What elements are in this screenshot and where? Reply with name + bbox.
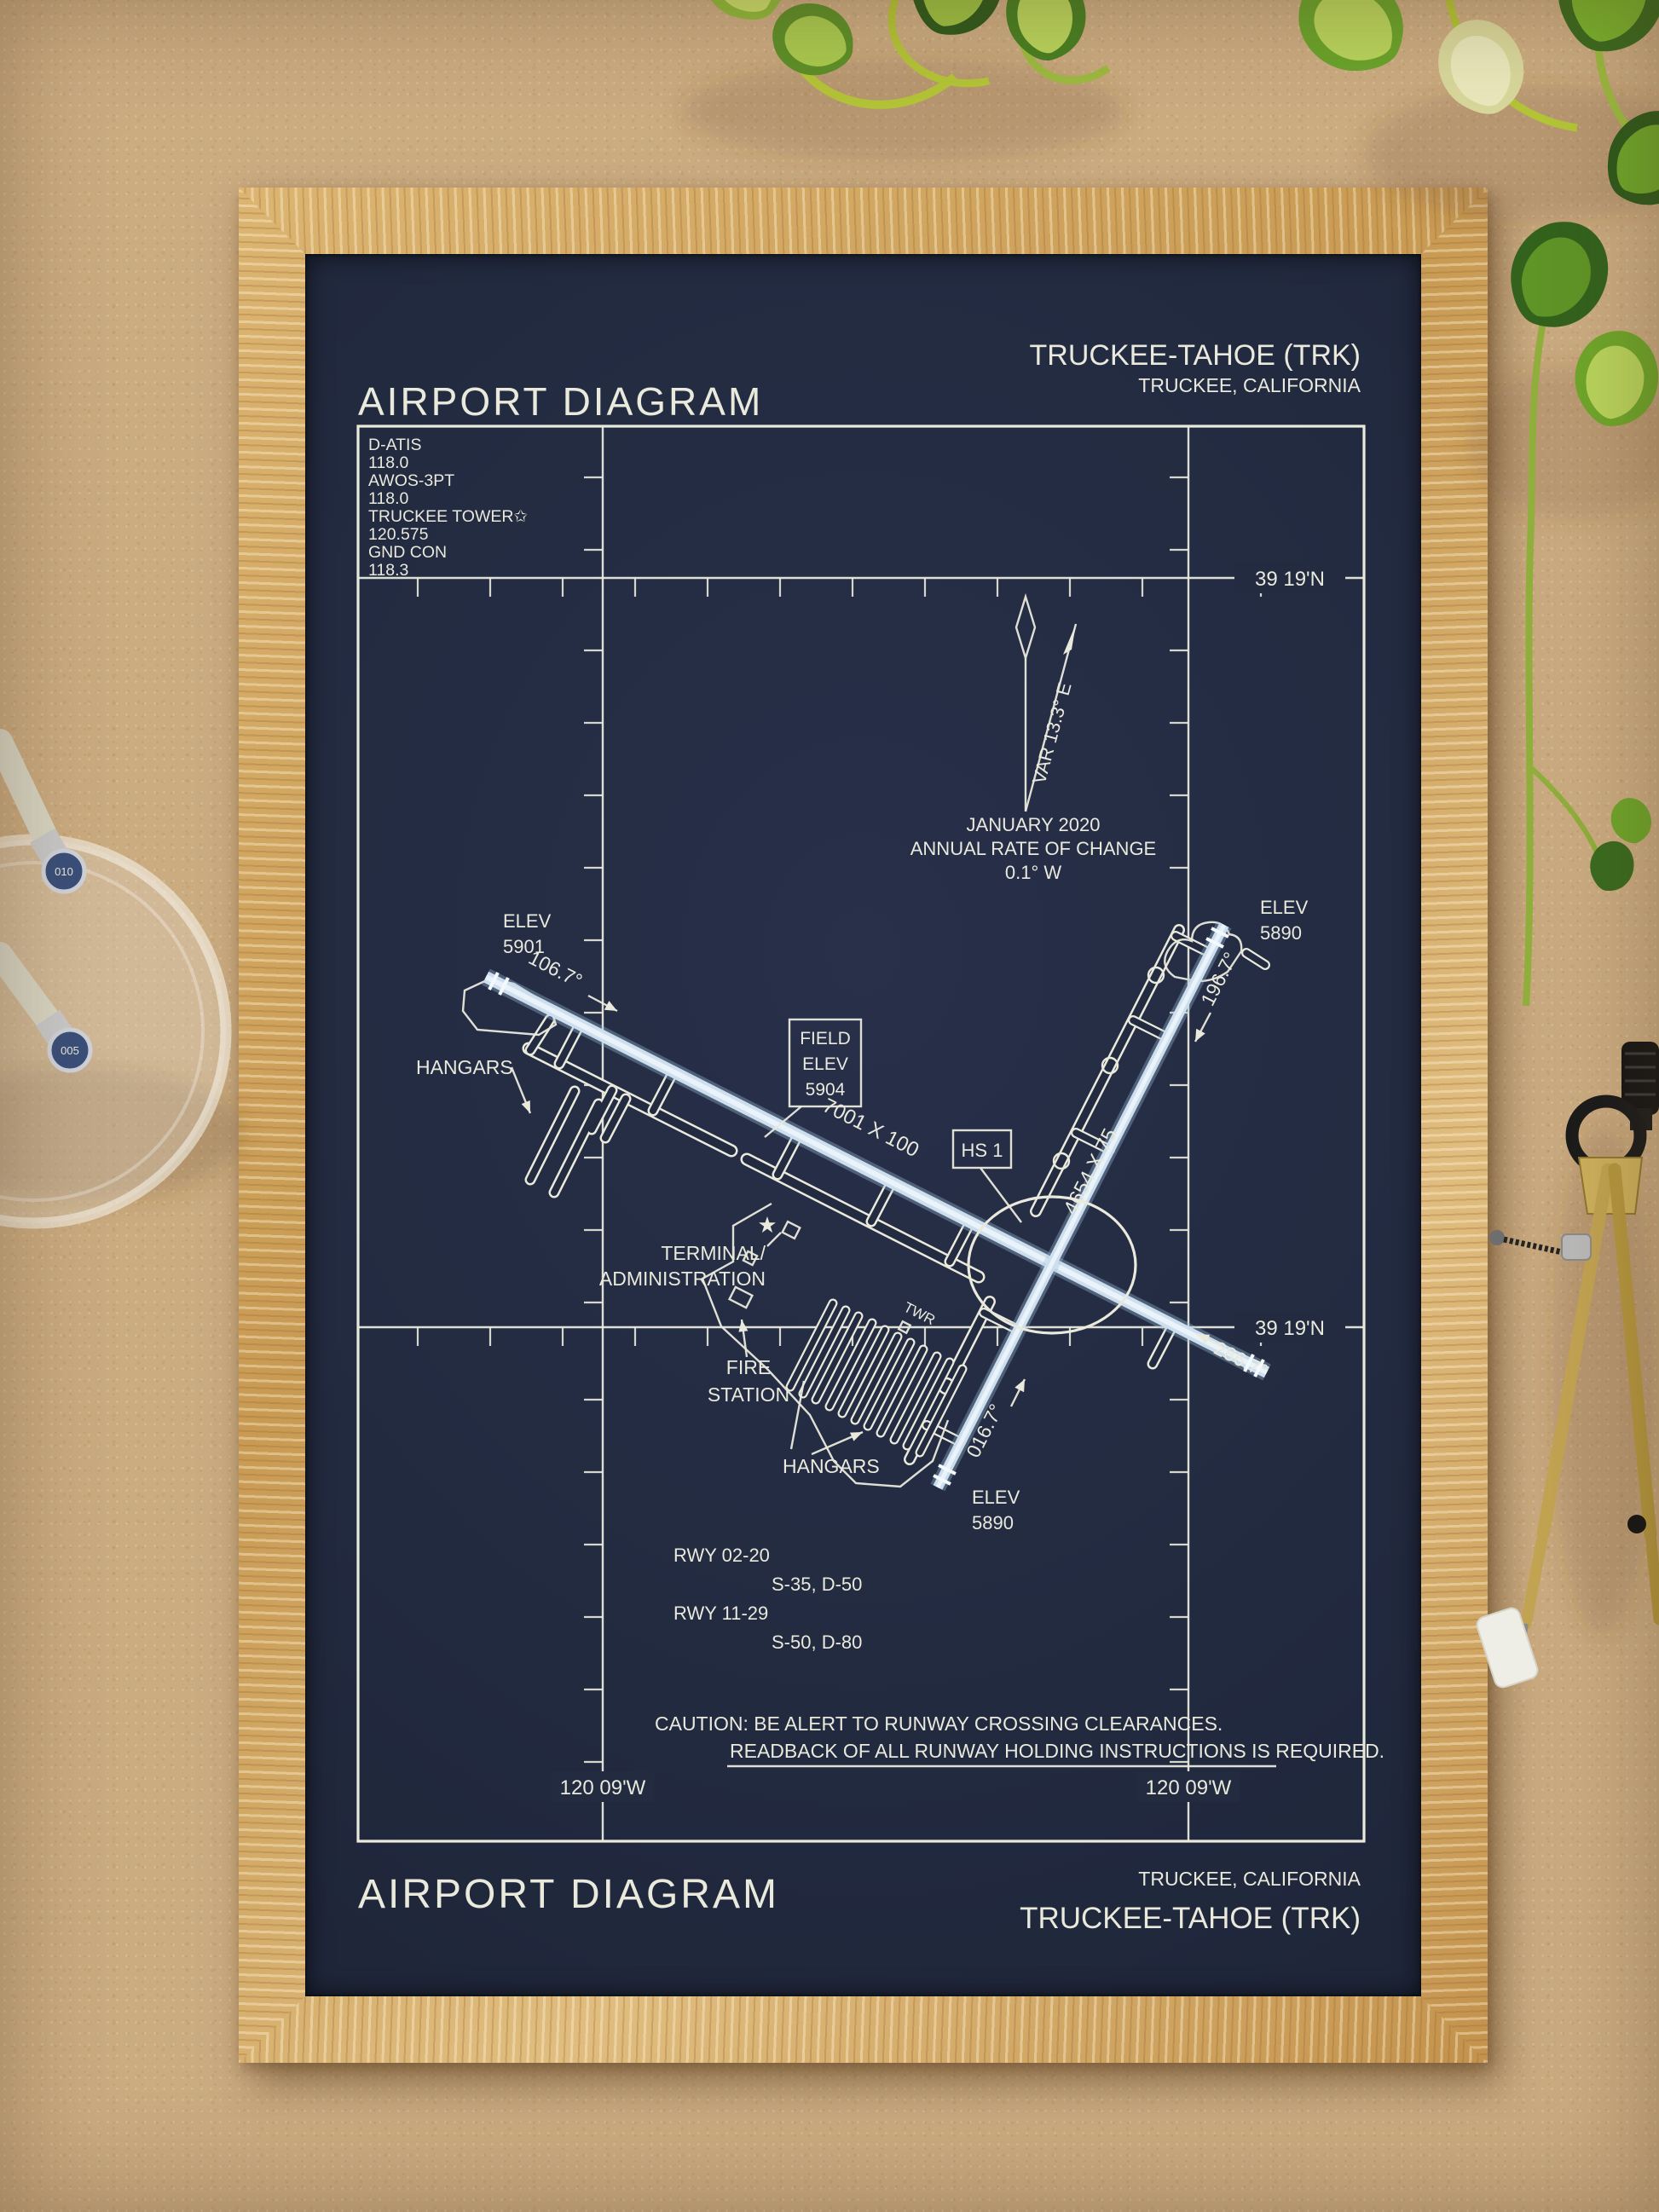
lon-left-label: 120 09'W (560, 1776, 646, 1799)
leaf-icon (893, 0, 1020, 51)
leaf-icon (1006, 0, 1085, 61)
rwy-data-line: S-35, D-50 (772, 1574, 862, 1595)
comm-line: 120.575 (368, 525, 429, 544)
lon-right-label: 120 09'W (1146, 1776, 1232, 1799)
airport-name: TRUCKEE-TAHOE (TRK) (1030, 339, 1361, 372)
black-pen-clip (7, 750, 29, 797)
annual-rate-label: ANNUAL RATE OF CHANGE (910, 838, 1156, 859)
caution-note: CAUTION: BE ALERT TO RUNWAY CROSSING CLE… (655, 1712, 1384, 1766)
terminal-label-2: ADMINISTRATION (599, 1268, 766, 1290)
pen-cap-005-label: 005 (61, 1044, 79, 1057)
leaf-icon (1608, 794, 1655, 846)
leaf-icon (1279, 0, 1425, 95)
vine-stem (1526, 256, 1560, 1006)
lon-right-ticks (1170, 477, 1188, 1762)
frame-edge-right (1421, 188, 1488, 2063)
north-arrow: VAR 13.3° E (1016, 597, 1076, 811)
frame-edge-bottom (239, 1996, 1488, 2063)
comm-line: 118.0 (368, 489, 409, 508)
rwy-data-line: RWY 11-29 (673, 1603, 768, 1624)
hangars-nw-label: HANGARS (416, 1056, 513, 1078)
elev-ne-word: ELEV (1260, 897, 1309, 918)
fire-label-1: FIRE (726, 1356, 771, 1378)
terminal-label-1: TERMINAL/ (661, 1242, 766, 1264)
compass-leg-left (1543, 1170, 1608, 1534)
variation-label: VAR 13.3° E (1028, 680, 1076, 786)
compass-ring (1572, 1101, 1640, 1170)
page-title: AIRPORT DIAGRAM (358, 379, 763, 424)
airport-diagram-chart: AIRPORT DIAGRAM TRUCKEE-TAHOE (TRK) TRUC… (305, 254, 1421, 1996)
hotspot-callout: HS 1 (953, 1130, 1021, 1222)
pen-cap-010-label: 010 (55, 865, 73, 878)
picture-frame: AIRPORT DIAGRAM TRUCKEE-TAHOE (TRK) TRUC… (239, 188, 1488, 2063)
leaf-icon (1564, 321, 1659, 436)
caution-line1: CAUTION: BE ALERT TO RUNWAY CROSSING CLE… (655, 1712, 1223, 1735)
elev-ne-value: 5890 (1260, 922, 1302, 944)
fire-station-building (730, 1287, 753, 1308)
compass-hinge (1579, 1158, 1642, 1214)
rwy-data-line: RWY 02-20 (673, 1545, 770, 1566)
terminal-building (783, 1222, 801, 1239)
true-north-arrowhead-icon (1016, 597, 1035, 658)
comm-line: D-ATIS (368, 436, 421, 454)
field-elev-line1: FIELD (800, 1029, 851, 1048)
pen-cap-010 (43, 851, 84, 892)
footer-city: TRUCKEE, CALIFORNIA (1138, 1868, 1361, 1890)
magnetic-north-barb-icon (1063, 624, 1076, 655)
compass-knob (1621, 1042, 1659, 1115)
divider-compass (1475, 1042, 1659, 1689)
photo-scene: AIRPORT DIAGRAM TRUCKEE-TAHOE (TRK) TRUC… (0, 0, 1659, 2212)
elev-nw-value: 5901 (503, 936, 545, 957)
compass-nut (1562, 1234, 1591, 1260)
field-elev-line3: 5904 (806, 1080, 846, 1100)
compass-screw (1504, 1239, 1574, 1255)
leaf-icon (760, 0, 865, 90)
leaf-icon (1428, 10, 1534, 124)
comm-frequencies: D-ATIS 118.0 AWOS-3PT 118.0 TRUCKEE TOWE… (368, 436, 528, 580)
hotspot-leader (980, 1168, 1021, 1222)
caution-line2: READBACK OF ALL RUNWAY HOLDING INSTRUCTI… (730, 1740, 1384, 1762)
black-pen (0, 743, 34, 814)
hotspot-label: HS 1 (962, 1140, 1003, 1161)
compass-leg-right (1615, 1170, 1650, 1534)
elev-s-word: ELEV (972, 1487, 1020, 1508)
lat-top-ticks (418, 578, 1261, 597)
leaf-icon (1488, 203, 1629, 348)
comm-line: TRUCKEE TOWER✩ (368, 507, 528, 526)
glass-with-pens: 010 005 (0, 742, 226, 1223)
plant-top-center (685, 0, 1108, 105)
pen-cap-005 (49, 1030, 90, 1071)
frame-edge-top (239, 188, 1488, 254)
comm-line: GND CON (368, 543, 447, 562)
glass-rim (0, 840, 226, 1223)
lat-top-label: 39 19'N (1255, 568, 1325, 591)
hangars-s-arrowhead-icon (850, 1432, 863, 1441)
beacon-star-icon (759, 1216, 776, 1233)
hangars-nw-arrowhead-icon (522, 1100, 530, 1113)
comm-line: AWOS-3PT (368, 471, 454, 490)
leaf-icon (1586, 93, 1659, 225)
leaf-icon (1582, 835, 1640, 898)
fire-label-2: STATION (708, 1383, 789, 1406)
rwy-data-line: S-50, D-80 (772, 1632, 862, 1653)
fire-arrowhead-icon (738, 1320, 748, 1332)
comm-line: 118.0 (368, 453, 409, 472)
airport-diagram-poster: AIRPORT DIAGRAM TRUCKEE-TAHOE (TRK) TRUC… (305, 254, 1421, 1996)
fineliner-pen-005: 005 (0, 955, 90, 1071)
footer-airport: TRUCKEE-TAHOE (TRK) (1020, 1902, 1361, 1935)
glass-inner-rim (0, 863, 203, 1200)
lat-bottom-label: 39 19'N (1255, 1317, 1325, 1340)
comm-line: 118.3 (368, 561, 408, 580)
leaf-icon (685, 0, 801, 37)
frame-edge-left (239, 188, 305, 2063)
heading-29-label: 286.7° (1211, 1337, 1271, 1382)
elev-s-value: 5890 (972, 1512, 1014, 1533)
footer-title: AIRPORT DIAGRAM (358, 1872, 779, 1917)
leaf-icon (1540, 0, 1659, 67)
compass-needle-tip (1519, 1624, 1526, 1664)
annual-rate-value: 0.1° W (1005, 862, 1061, 883)
hangars-s-label: HANGARS (783, 1455, 880, 1477)
airport-city: TRUCKEE, CALIFORNIA (1138, 374, 1361, 396)
field-elev-line2: ELEV (802, 1054, 848, 1074)
runway-data-block: RWY 02-20 S-35, D-50 RWY 11-29 S-50, D-8… (673, 1545, 862, 1653)
graticule-labels: 39 19'N 39 19'N 120 09'W 120 09'W (552, 563, 1345, 1802)
terminal-leader (767, 1233, 781, 1246)
variation-date: JANUARY 2020 (967, 814, 1101, 835)
elev-nw-word: ELEV (503, 910, 552, 932)
fineliner-pen-010: 010 (0, 742, 84, 892)
